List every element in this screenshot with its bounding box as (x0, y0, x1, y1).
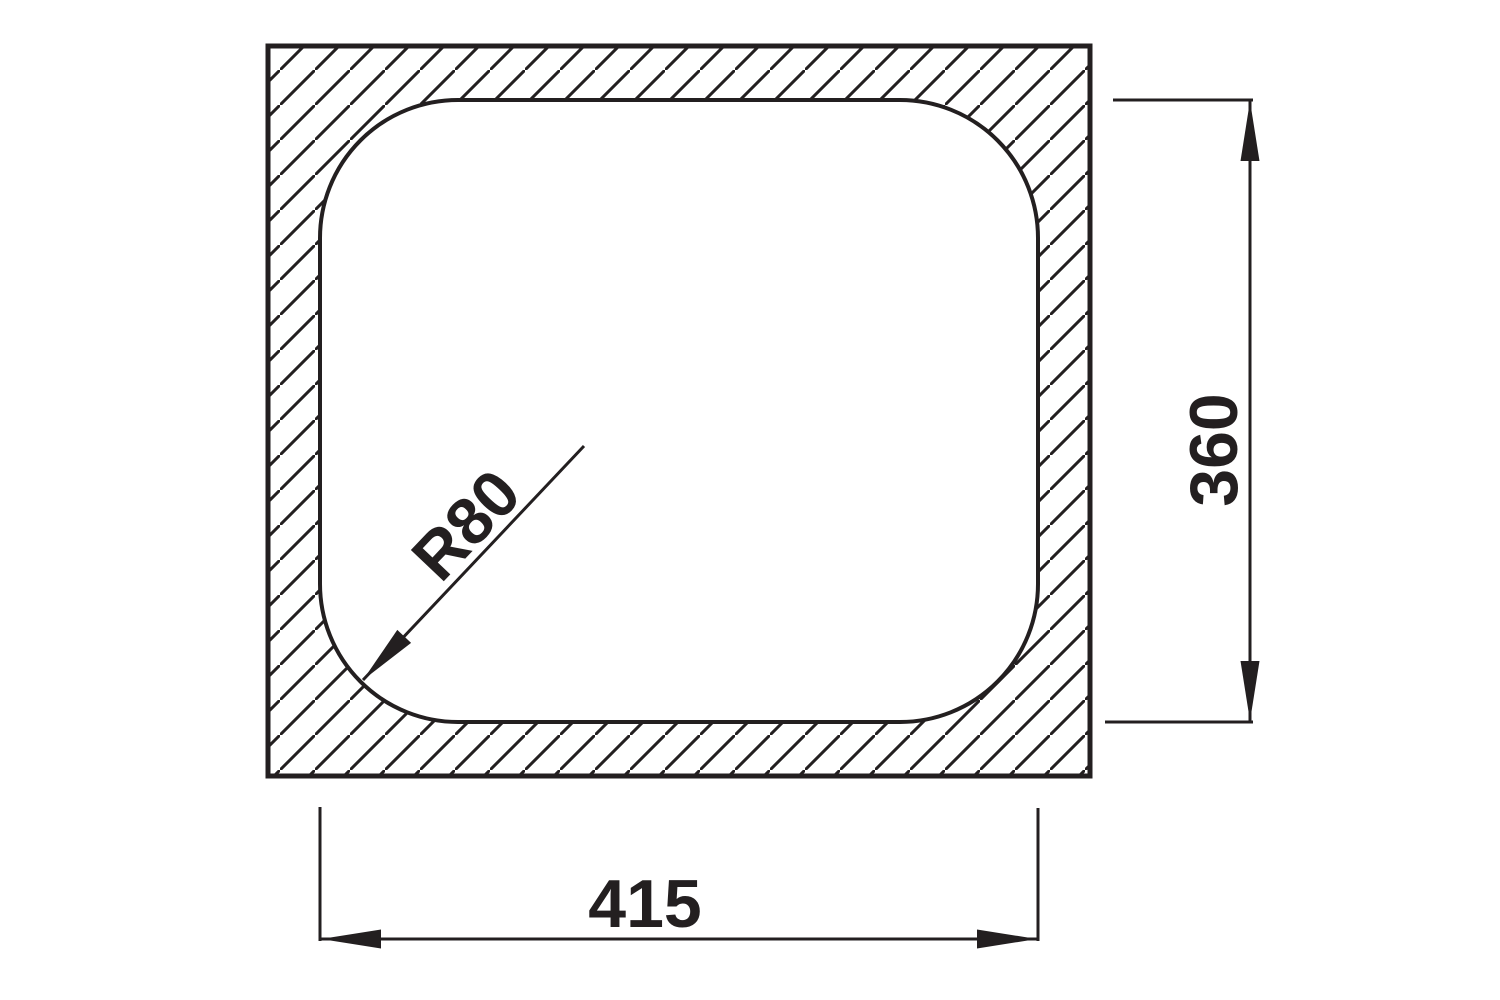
outer-frame-outline (268, 46, 1090, 776)
height-label: 360 (1176, 393, 1252, 506)
width-arrowhead-right (977, 930, 1037, 949)
technical-drawing-canvas: R80 415 360 (0, 0, 1500, 1000)
cutout-outline (320, 100, 1038, 722)
width-label: 415 (588, 866, 701, 942)
width-arrowhead-left (321, 930, 381, 949)
radius-dimension: R80 (363, 446, 584, 680)
height-arrowhead-top (1241, 101, 1260, 161)
height-dimension: 360 (1105, 100, 1260, 722)
radius-arrowhead (363, 630, 411, 680)
radius-label: R80 (397, 455, 534, 594)
width-dimension: 415 (320, 807, 1038, 949)
height-arrowhead-bottom (1241, 661, 1260, 721)
hatched-frame-region (268, 46, 1090, 776)
cutout-dimension-drawing: R80 415 360 (0, 0, 1500, 1000)
